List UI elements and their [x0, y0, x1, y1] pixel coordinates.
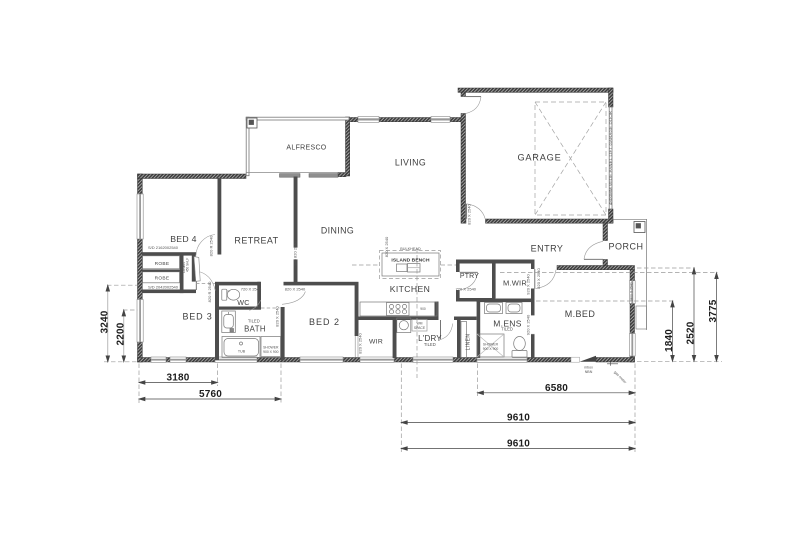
svg-text:WM: WM [416, 322, 422, 326]
svg-text:920 X 2540: 920 X 2540 [525, 273, 530, 294]
svg-text:920 X 2540: 920 X 2540 [525, 314, 530, 335]
svg-text:4800MM WIDE PANEL LIFT GARAGE: 4800MM WIDE PANEL LIFT GARAGE DOOR [608, 111, 613, 205]
svg-text:1800 X 2540: 1800 X 2540 [630, 282, 634, 301]
svg-text:820 X 2540: 820 X 2540 [357, 332, 362, 353]
svg-text:BATH: BATH [244, 325, 266, 334]
svg-text:S/D 2042002540: S/D 2042002540 [148, 284, 179, 289]
svg-text:ALFRESCO: ALFRESCO [286, 145, 326, 152]
svg-text:SHOWER: SHOWER [483, 343, 499, 347]
svg-text:6580: 6580 [545, 383, 568, 394]
svg-text:S/D 2162002540: S/D 2162002540 [148, 245, 179, 250]
svg-text:1840: 1840 [664, 329, 675, 352]
svg-text:BED 2: BED 2 [309, 317, 340, 327]
svg-text:WC: WC [237, 298, 250, 307]
svg-text:ROBE: ROBE [155, 275, 170, 281]
svg-text:2520: 2520 [686, 321, 697, 344]
svg-text:3180: 3180 [166, 373, 189, 384]
svg-text:900 X 900: 900 X 900 [483, 347, 499, 351]
svg-text:ROBE: ROBE [155, 261, 170, 267]
svg-text:S/D 820 2540: S/D 820 2540 [292, 240, 297, 265]
svg-text:5760: 5760 [199, 389, 222, 400]
svg-text:WIR: WIR [369, 339, 383, 346]
svg-text:KITCHEN: KITCHEN [390, 284, 431, 294]
svg-text:TILED: TILED [501, 327, 513, 332]
svg-text:2200: 2200 [115, 322, 126, 345]
svg-text:PTRY: PTRY [460, 273, 479, 280]
svg-text:M.BED: M.BED [565, 309, 596, 319]
svg-text:M.WIR: M.WIR [503, 279, 527, 288]
svg-text:LIVING: LIVING [395, 158, 426, 168]
svg-text:NBN: NBN [585, 370, 593, 374]
svg-text:TUB: TUB [238, 350, 246, 354]
svg-text:820 X 2540: 820 X 2540 [274, 305, 279, 326]
svg-text:9610: 9610 [507, 413, 530, 424]
svg-text:720 X 2540: 720 X 2540 [241, 286, 262, 291]
svg-text:3240: 3240 [99, 310, 110, 333]
svg-text:GARAGE: GARAGE [517, 153, 561, 163]
svg-text:ISLAND BENCH: ISLAND BENCH [391, 257, 430, 263]
svg-text:BULKHEAD: BULKHEAD [400, 247, 421, 251]
svg-text:DINING: DINING [321, 226, 354, 236]
svg-text:900 X 900: 900 X 900 [263, 350, 279, 354]
svg-text:820 R 2540: 820 R 2540 [207, 281, 212, 302]
svg-text:BED 4: BED 4 [170, 234, 197, 244]
svg-text:3775: 3775 [708, 299, 719, 322]
svg-text:820 X 2540: 820 X 2540 [285, 287, 306, 292]
svg-text:720 X 2540: 720 X 2540 [456, 287, 477, 292]
svg-text:820 X 2540: 820 X 2540 [466, 203, 471, 224]
svg-text:SPACE: SPACE [414, 326, 426, 330]
svg-text:450 SHLF: 450 SHLF [186, 258, 190, 272]
svg-text:PORCH: PORCH [608, 242, 643, 252]
svg-text:TILED: TILED [424, 342, 436, 347]
svg-text:9610: 9610 [507, 439, 530, 450]
svg-text:900: 900 [420, 307, 426, 311]
svg-text:ENTRY: ENTRY [531, 244, 564, 254]
svg-text:820 X 2540: 820 X 2540 [536, 267, 541, 288]
svg-text:RETREAT: RETREAT [234, 236, 278, 246]
svg-text:820 R 2540: 820 R 2540 [209, 235, 214, 256]
svg-text:TILED: TILED [248, 318, 260, 323]
svg-text:SHOWER: SHOWER [263, 346, 279, 350]
svg-text:mbox: mbox [584, 366, 593, 370]
svg-text:BED 3: BED 3 [182, 312, 212, 322]
svg-text:LINEN: LINEN [466, 334, 472, 351]
svg-text:820 X 2540: 820 X 2540 [384, 236, 389, 257]
